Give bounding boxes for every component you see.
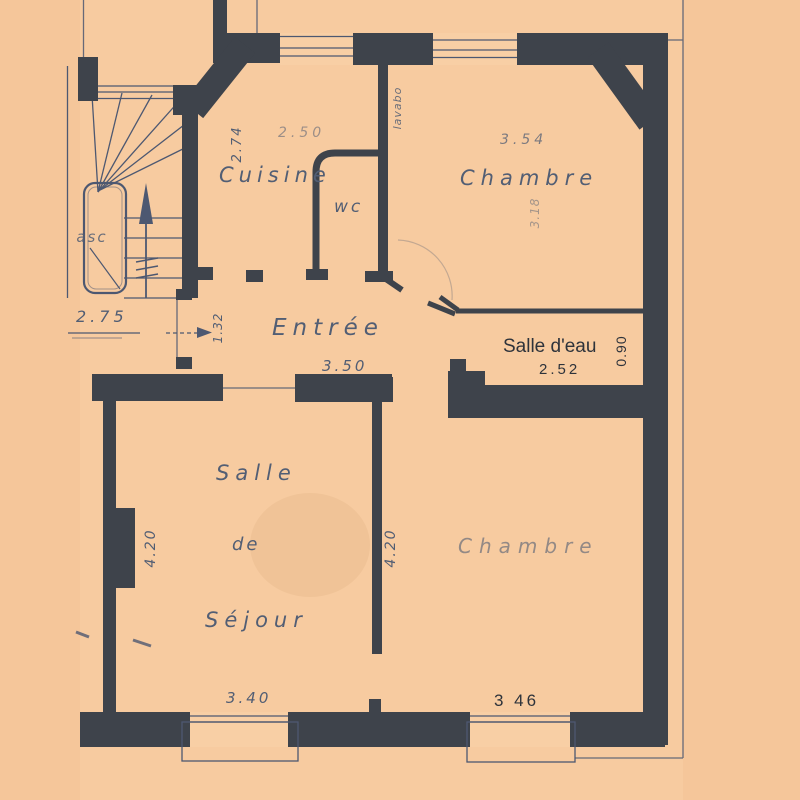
label-cuisine: Cuisine: [219, 163, 331, 187]
label-entree: Entrée: [272, 315, 384, 341]
label-sejour-1: Salle: [216, 461, 297, 485]
window-chambre-top: [433, 33, 517, 65]
label-wc: wc: [334, 197, 363, 217]
dim-hall-door: 1.32: [211, 313, 225, 344]
dim-sejour-width: 3.40: [226, 689, 271, 707]
label-elevator: asc: [76, 228, 107, 246]
dim-chambre-top-depth: 3.18: [528, 198, 542, 229]
dim-cuisine-depth: 2.74: [230, 126, 245, 163]
dim-entree-width: 3.50: [322, 357, 367, 375]
label-sejour-2: de: [232, 534, 261, 555]
dim-salle-deau-width: 2.52: [539, 361, 580, 378]
floor-plan-drawing: Cuisine wc Entrée Chambre Salle d'eau Sa…: [0, 0, 800, 800]
paper-stain: [250, 493, 370, 597]
dim-hall-width: 2.75: [76, 307, 128, 326]
window-cuisine: [280, 33, 353, 65]
label-chambre-bottom: Chambre: [458, 534, 599, 558]
dim-sejour-depth-left: 4.20: [143, 528, 159, 567]
label-sejour-3: Séjour: [205, 608, 308, 632]
floor-plan-scan: Cuisine wc Entrée Chambre Salle d'eau Sa…: [0, 0, 800, 800]
dim-chambre-top-width: 3.54: [500, 132, 547, 148]
label-lavabo: lavabo: [391, 87, 404, 130]
dim-salle-deau-depth: 0.90: [613, 335, 629, 366]
dim-sejour-depth-right: 4.20: [383, 528, 399, 567]
label-salle-deau: Salle d'eau: [503, 336, 596, 357]
dim-chambre-bottom-width: 3 46: [494, 691, 539, 710]
dim-cuisine-width: 2.50: [278, 125, 325, 141]
label-chambre-top: Chambre: [460, 166, 598, 190]
